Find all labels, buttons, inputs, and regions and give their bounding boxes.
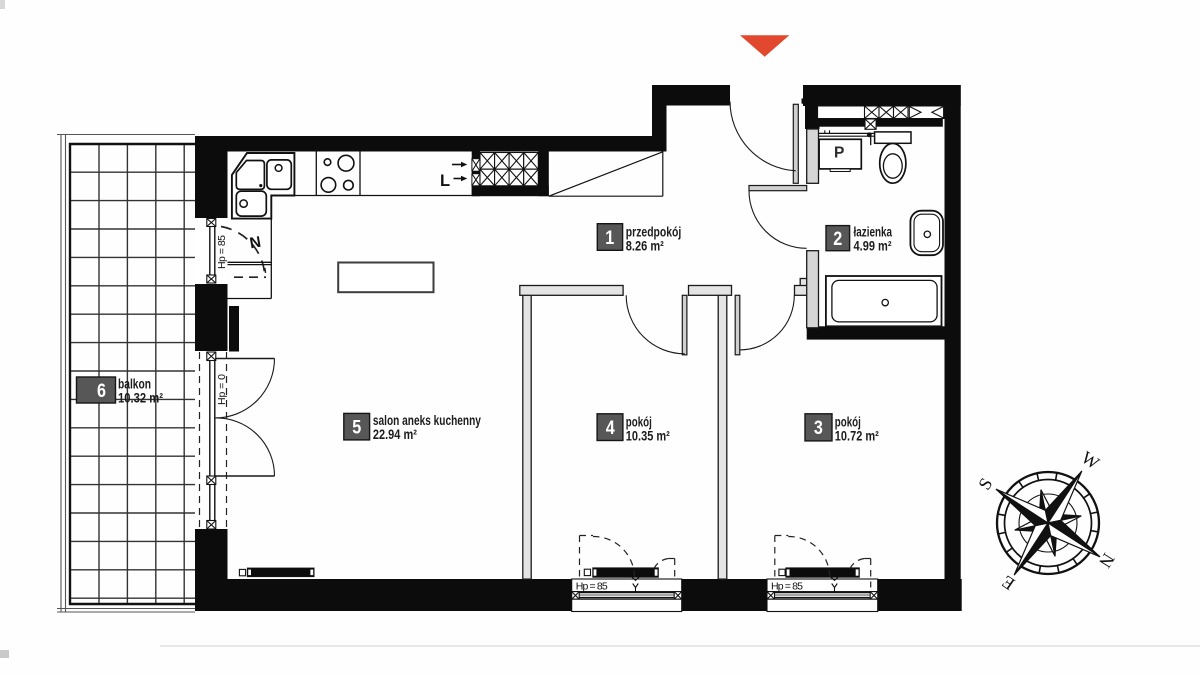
svg-text:4: 4 xyxy=(606,418,615,439)
svg-text:P: P xyxy=(834,145,844,162)
svg-text:10.32 m²: 10.32 m² xyxy=(118,390,163,405)
svg-text:3: 3 xyxy=(814,418,823,439)
svg-text:S: S xyxy=(974,474,996,493)
svg-text:4.99 m²: 4.99 m² xyxy=(854,238,892,253)
svg-text:22.94 m²: 22.94 m² xyxy=(373,427,417,442)
svg-text:10.72 m²: 10.72 m² xyxy=(835,428,879,443)
svg-text:2: 2 xyxy=(833,229,842,250)
svg-text:8.26 m²: 8.26 m² xyxy=(626,238,664,253)
svg-text:W: W xyxy=(1078,447,1103,473)
svg-text:Hp = 85: Hp = 85 xyxy=(576,581,608,593)
svg-text:E: E xyxy=(998,571,1018,594)
svg-text:Hp = 85: Hp = 85 xyxy=(216,235,228,269)
svg-text:balkon: balkon xyxy=(118,377,151,392)
svg-text:6: 6 xyxy=(97,381,106,402)
svg-text:10.35 m²: 10.35 m² xyxy=(626,428,670,443)
svg-text:N: N xyxy=(248,234,262,253)
svg-text:5: 5 xyxy=(352,417,361,438)
svg-text:N: N xyxy=(1095,550,1119,572)
svg-text:1: 1 xyxy=(605,228,614,249)
svg-text:L: L xyxy=(440,172,450,190)
svg-text:Hp = 85: Hp = 85 xyxy=(771,581,803,593)
svg-text:salon aneks kuchenny: salon aneks kuchenny xyxy=(373,413,481,428)
